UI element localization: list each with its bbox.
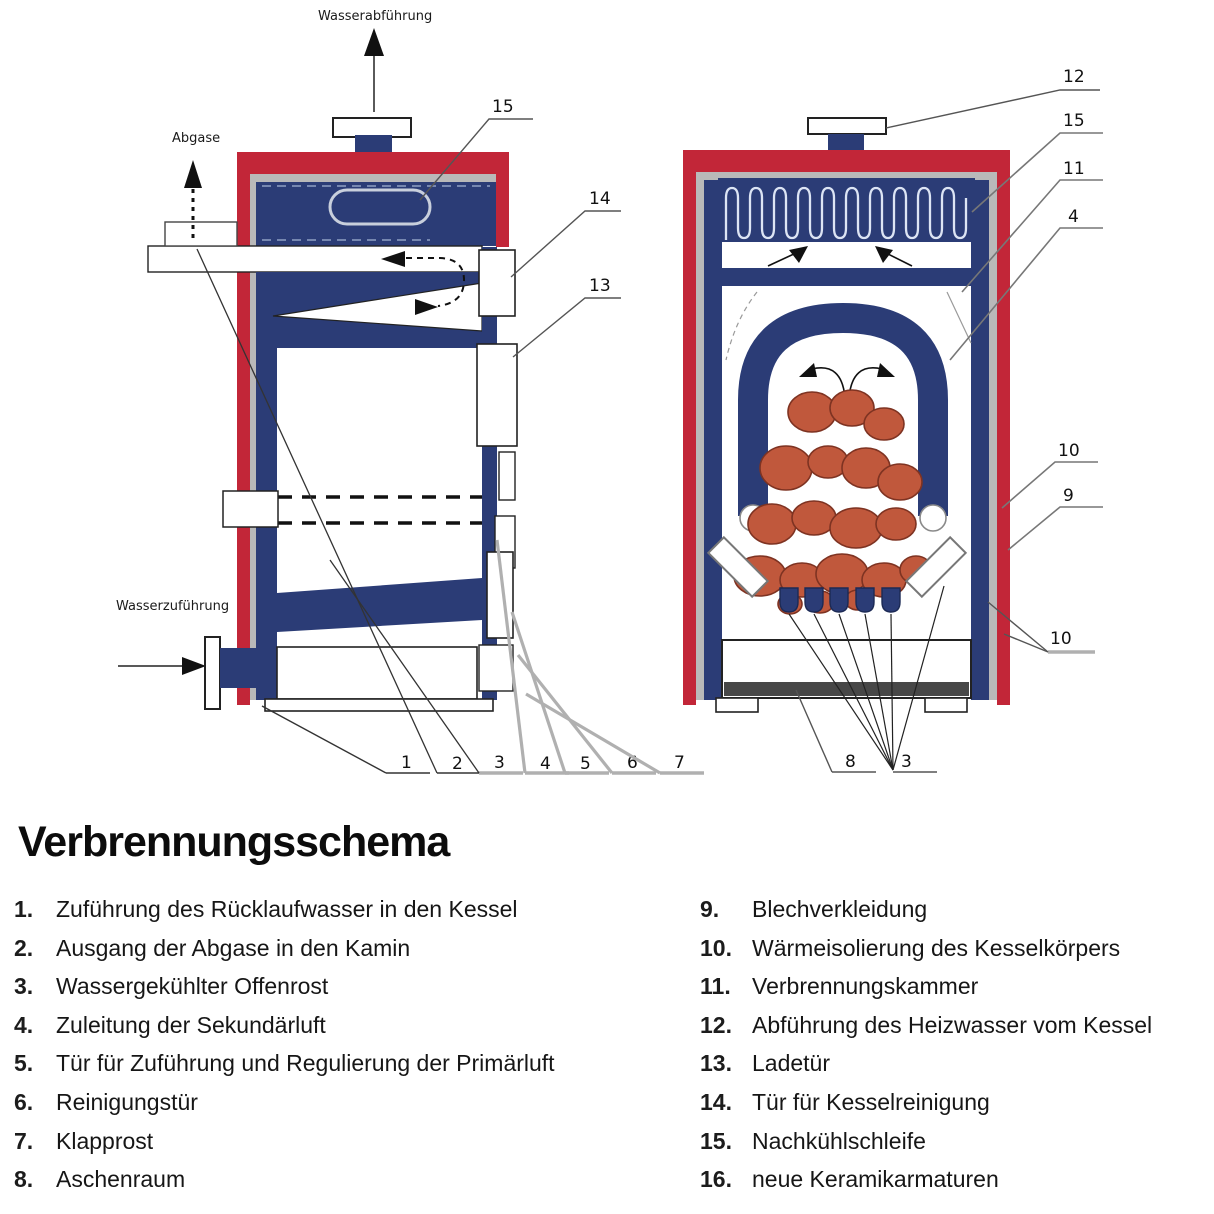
left-boiler-section: Abgase Wasserzuführung [116,28,517,711]
legend-number: 2. [14,929,56,968]
page: Abgase Wasserzuführung [0,0,1214,1214]
legend-number: 12. [700,1006,752,1045]
legend-text: Tür für Zuführung und Regulierung der Pr… [56,1044,555,1083]
boiler-diagram: Abgase Wasserzuführung [0,0,1214,795]
legend-item-6: 6.Reinigungstür [14,1083,674,1122]
legend-text: Reinigungstür [56,1083,198,1122]
ash-chamber-left [277,647,477,699]
legend-text: Wärmeisolierung des Kesselkörpers [752,929,1120,968]
callout-3: 3 [494,753,505,773]
callout-3-right: 3 [901,752,912,772]
callout-12: 12 [1063,67,1085,87]
legend-number: 9. [700,890,752,929]
legend-item-5: 5.Tür für Zuführung und Regulierung der … [14,1044,674,1083]
legend-item-3: 3.Wassergekühlter Offenrost [14,967,674,1006]
legend-right-column: 9.Blechverkleidung 10.Wärmeisolierung de… [700,890,1214,1199]
legend-text: Aschenraum [56,1160,185,1199]
callout-1: 1 [401,753,412,773]
legend-item-2: 2.Ausgang der Abgase in den Kamin [14,929,674,968]
legend-text: neue Keramikarmaturen [752,1160,999,1199]
callout-11: 11 [1063,159,1085,179]
legend-item-16: 16.neue Keramikarmaturen [700,1160,1214,1199]
legend-text: Zuleitung der Sekundärluft [56,1006,326,1045]
legend-left-column: 1.Zuführung des Rücklaufwasser in den Ke… [14,890,674,1199]
page-title: Verbrennungsschema [18,818,449,867]
water-out-arrow-icon [364,28,384,56]
legend-item-8: 8.Aschenraum [14,1160,674,1199]
flame-arrow-left-icon [799,363,817,377]
legend-item-11: 11.Verbrennungskammer [700,967,1214,1006]
legend-item-4: 4.Zuleitung der Sekundärluft [14,1006,674,1045]
callout-13: 13 [589,276,611,296]
legend-number: 10. [700,929,752,968]
callout-7: 7 [674,753,685,773]
legend-item-14: 14.Tür für Kesselreinigung [700,1083,1214,1122]
legend-number: 7. [14,1122,56,1161]
legend-number: 11. [700,967,752,1006]
legend-text: Wassergekühlter Offenrost [56,967,328,1006]
loading-door [477,344,517,446]
water-in-label: Wasserzuführung [116,599,229,614]
callout-10-lower: 10 [1050,629,1072,649]
right-boiler-section [683,118,1010,712]
legend-text: Nachkühlschleife [752,1122,926,1161]
legend-text: Ausgang der Abgase in den Kamin [56,929,410,968]
legend-item-7: 7.Klapprost [14,1122,674,1161]
flue-gas-label: Abgase [172,131,220,146]
legend-number: 1. [14,890,56,929]
legend-text: Zuführung des Rücklaufwasser in den Kess… [56,890,518,929]
legend-number: 13. [700,1044,752,1083]
legend-number: 4. [14,1006,56,1045]
legend-item-10: 10.Wärmeisolierung des Kesselkörpers [700,929,1214,968]
legend-text: Blechverkleidung [752,890,927,929]
water-in-arrow-icon [182,657,206,675]
legend-number: 3. [14,967,56,1006]
legend-number: 16. [700,1160,752,1199]
callout-2: 2 [452,754,463,774]
callout-14: 14 [589,189,611,209]
flue-gas-arrow-icon [184,160,202,188]
legend-number: 15. [700,1122,752,1161]
legend-number: 8. [14,1160,56,1199]
callout-4: 4 [540,754,551,774]
cooling-coil [726,188,966,240]
callout-4-right: 4 [1068,207,1079,227]
water-out-label: Wasserabführung [318,9,432,24]
legend-text: Klapprost [56,1122,153,1161]
legend-item-9: 9.Blechverkleidung [700,890,1214,929]
legend-item-15: 15.Nachkühlschleife [700,1122,1214,1161]
callout-9: 9 [1063,486,1074,506]
callout-15-left: 15 [492,97,514,117]
callout-15-right: 15 [1063,111,1085,131]
callout-8: 8 [845,752,856,772]
callout-5: 5 [580,754,591,774]
legend-text: Abführung des Heizwasser vom Kessel [752,1006,1152,1045]
legend-number: 14. [700,1083,752,1122]
legend-item-13: 13.Ladetür [700,1044,1214,1083]
callout-10-upper: 10 [1058,441,1080,461]
legend-item-12: 12.Abführung des Heizwasser vom Kessel [700,1006,1214,1045]
legend-text: Tür für Kesselreinigung [752,1083,990,1122]
legend-number: 6. [14,1083,56,1122]
legend-number: 5. [14,1044,56,1083]
flame-arrow-right-icon [877,363,895,377]
legend-text: Ladetür [752,1044,830,1083]
secondary-air-flange [223,491,278,527]
cleaning-door-top [479,250,515,316]
legend-item-1: 1.Zuführung des Rücklaufwasser in den Ke… [14,890,674,929]
legend-text: Verbrennungskammer [752,967,978,1006]
